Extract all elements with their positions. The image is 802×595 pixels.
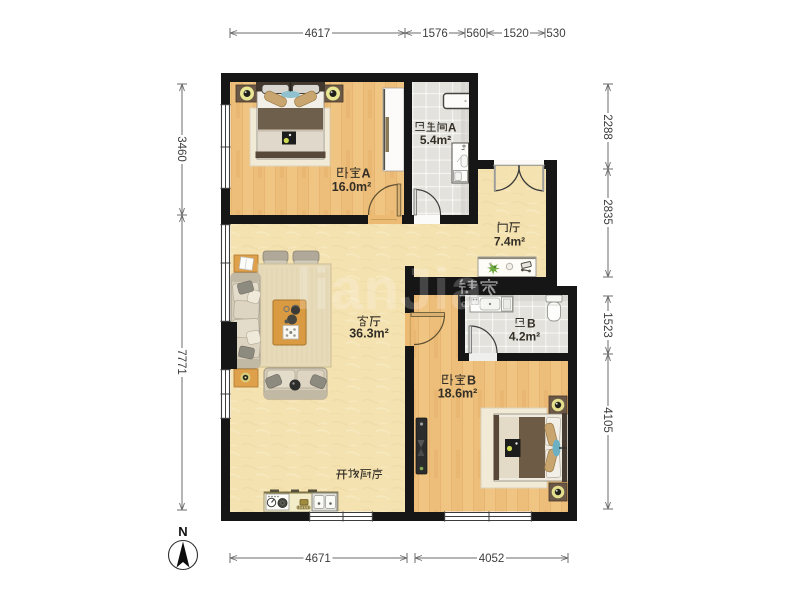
svg-text:36.3m²: 36.3m² (349, 327, 389, 341)
svg-text:1523: 1523 (601, 312, 613, 338)
svg-text:560: 560 (466, 28, 485, 40)
svg-text:4617: 4617 (305, 28, 331, 40)
svg-text:7771: 7771 (175, 349, 187, 375)
svg-text:lianJia: lianJia (296, 257, 484, 322)
svg-text:2288: 2288 (601, 114, 613, 140)
svg-text:A: A (362, 167, 371, 181)
svg-text:16.0m²: 16.0m² (332, 180, 372, 194)
svg-text:1576: 1576 (422, 28, 448, 40)
svg-text:N: N (178, 524, 187, 539)
svg-text:4671: 4671 (305, 553, 331, 565)
svg-text:B: B (467, 374, 476, 388)
svg-text:5.4m²: 5.4m² (420, 133, 451, 147)
svg-text:1520: 1520 (503, 28, 529, 40)
svg-text:4.2m²: 4.2m² (509, 330, 540, 344)
svg-text:7.4m²: 7.4m² (494, 235, 525, 249)
svg-text:c o m: c o m (461, 299, 487, 310)
svg-text:B: B (527, 317, 536, 331)
svg-text:3460: 3460 (175, 136, 187, 162)
svg-text:4105: 4105 (601, 407, 613, 433)
svg-text:2835: 2835 (601, 199, 613, 225)
svg-text:18.6m²: 18.6m² (438, 387, 478, 401)
svg-text:530: 530 (546, 28, 565, 40)
svg-text:4052: 4052 (479, 553, 505, 565)
